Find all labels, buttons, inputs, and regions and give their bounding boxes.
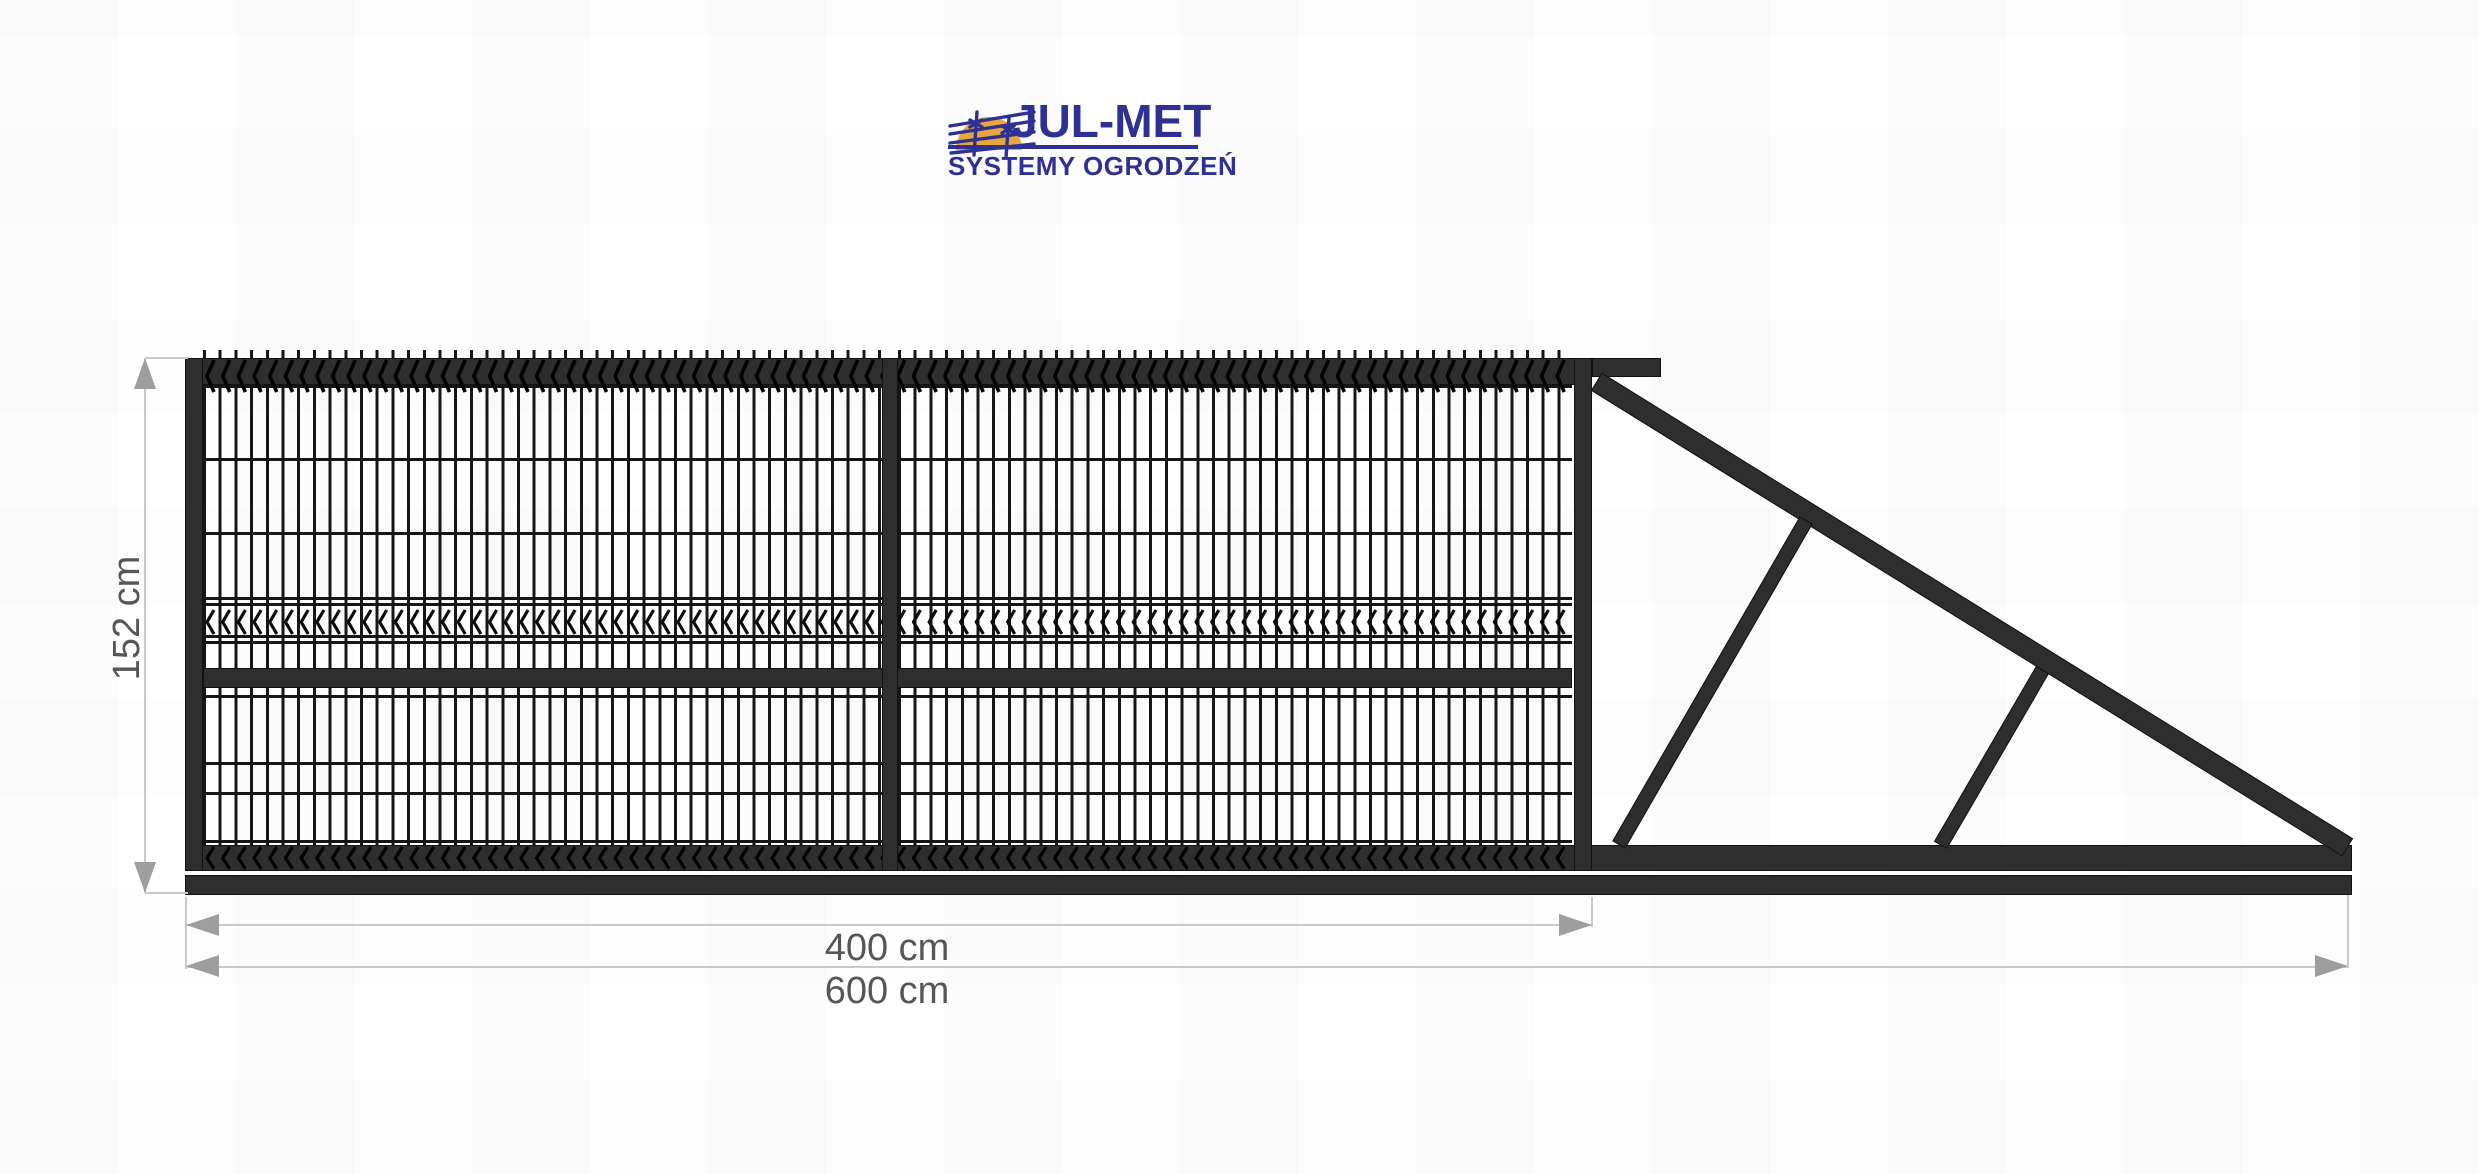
counterweight-brace-2: [1934, 666, 2049, 849]
dim-height-arrow-bottom: [134, 862, 156, 893]
dim-leaf-arrow-right: [1559, 914, 1592, 936]
dim-leaf-line: [186, 924, 1592, 926]
dim-height-arrow-top: [134, 358, 156, 389]
product-image: JUL-MET SYSTEMY OGRODZEŃ 152 cm: [0, 0, 2480, 1174]
dim-ext-bottom-left: [145, 892, 188, 894]
mesh-panel-right: [898, 350, 1572, 845]
dim-leaf-arrow-left: [186, 914, 219, 936]
brand-name: JUL-MET: [1012, 98, 1200, 144]
brand-tagline: SYSTEMY OGRODZEŃ: [948, 151, 1200, 182]
right-post: [1574, 358, 1592, 871]
dim-total-arrow-left: [186, 955, 219, 977]
left-post: [185, 358, 203, 871]
logo-underline: [948, 145, 1198, 149]
middle-post: [882, 358, 898, 871]
dim-ext-top-left: [145, 357, 188, 359]
bottom-track-beam: [185, 875, 2352, 895]
dim-total-line: [186, 966, 2348, 968]
mesh-panel-left: [203, 350, 882, 845]
dim-total-arrow-right: [2315, 955, 2348, 977]
brand-logo: JUL-MET SYSTEMY OGRODZEŃ: [948, 98, 1200, 178]
dim-leaf-label: 400 cm: [787, 929, 987, 967]
dim-total-label: 600 cm: [787, 972, 987, 1010]
counterweight-brace-1: [1612, 516, 1812, 848]
dim-height-label: 152 cm: [107, 533, 147, 703]
